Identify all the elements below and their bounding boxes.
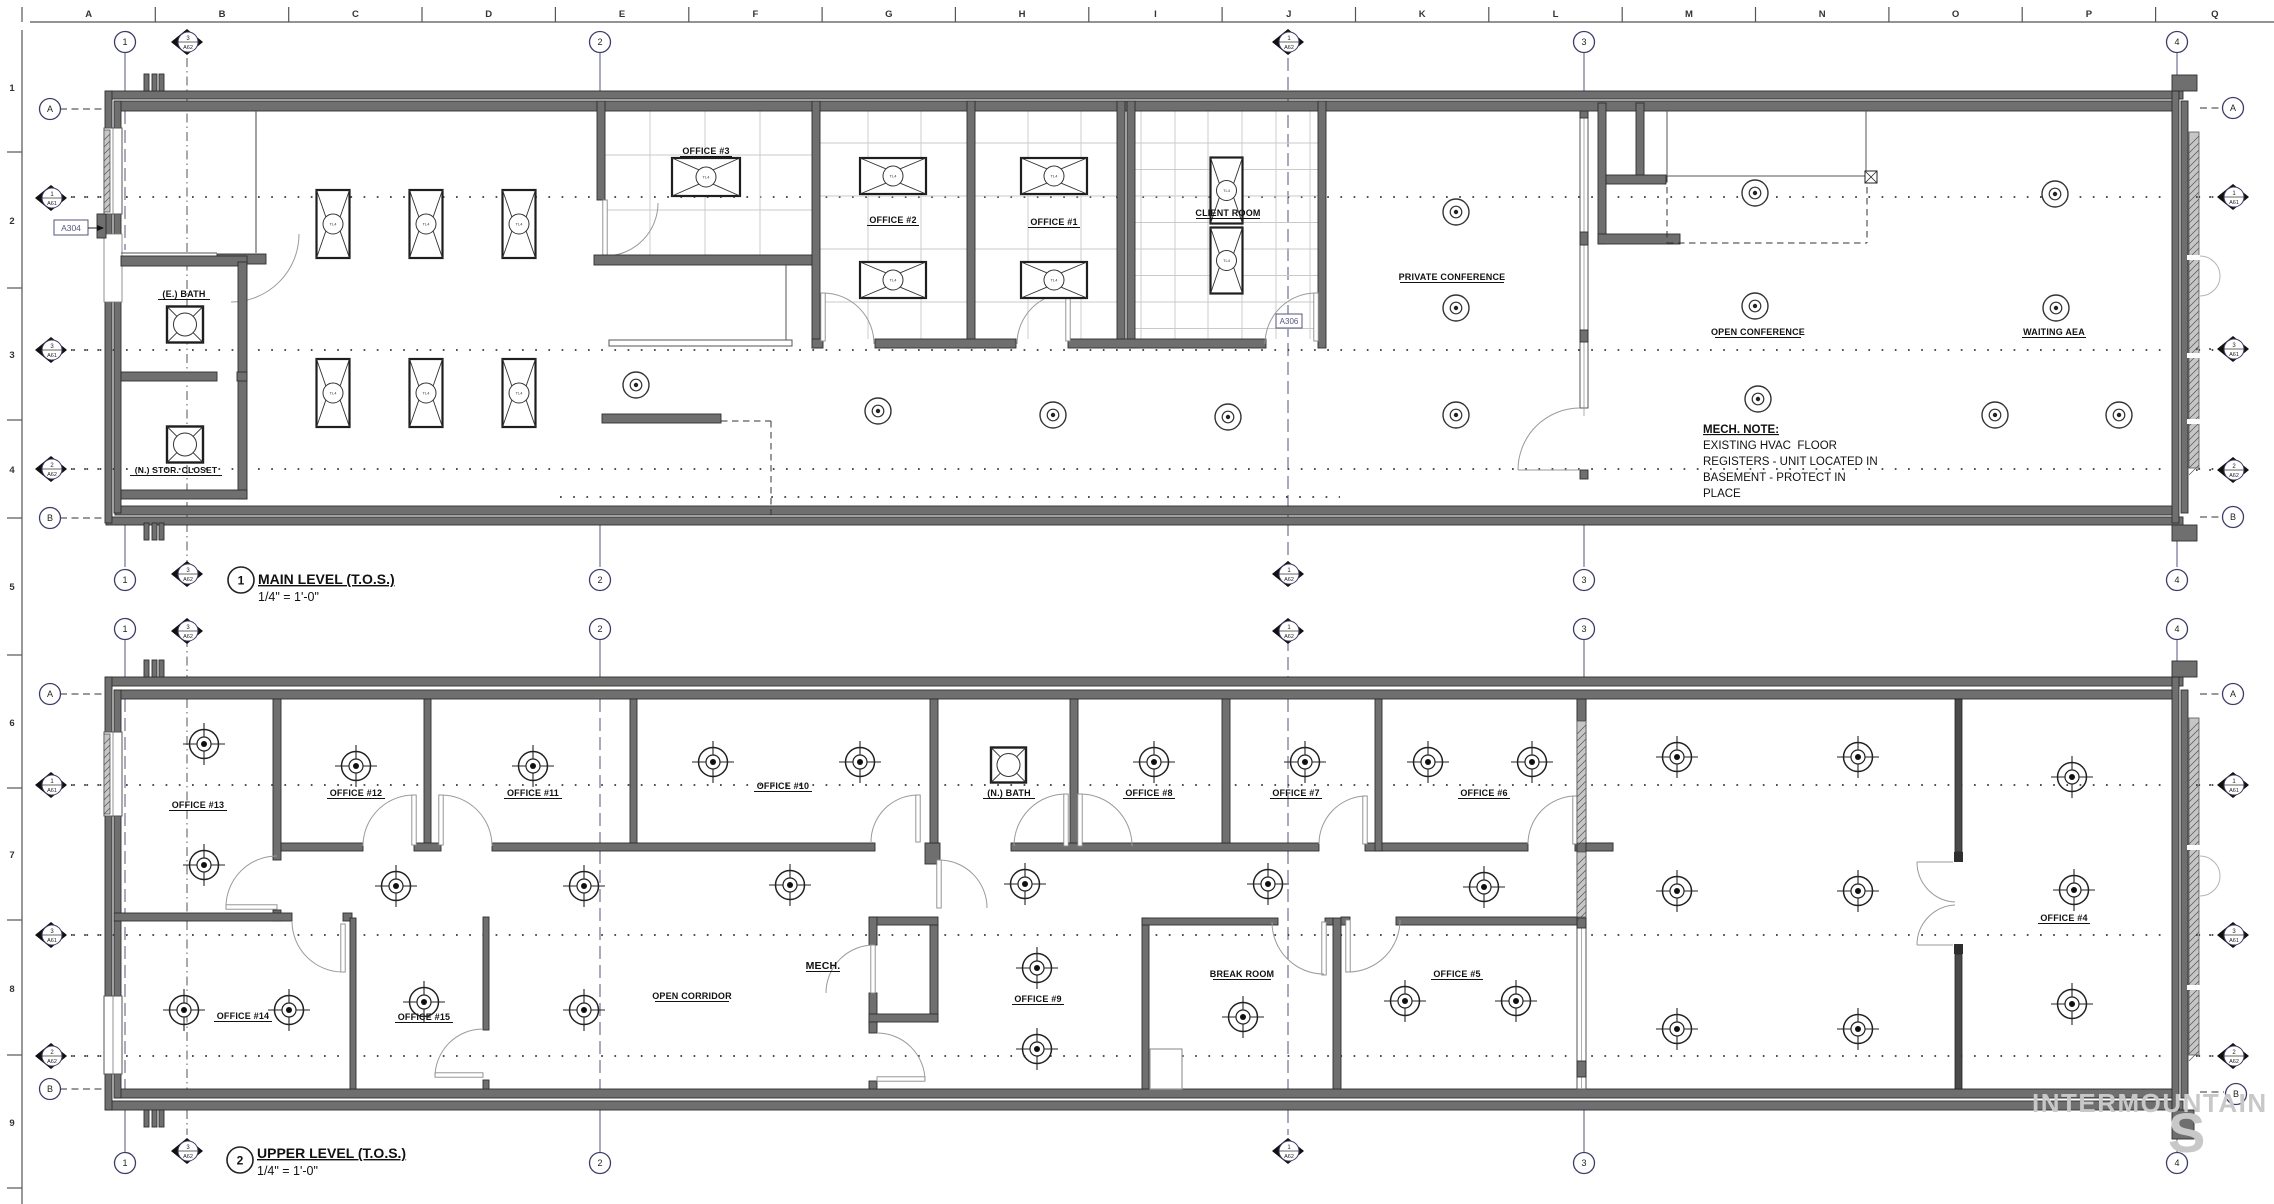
svg-text:K: K bbox=[1419, 9, 1426, 20]
svg-text:BASEMENT - PROTECT IN: BASEMENT - PROTECT IN bbox=[1703, 472, 1846, 484]
svg-text:OFFICE #2: OFFICE #2 bbox=[869, 215, 916, 225]
svg-text:1: 1 bbox=[122, 575, 127, 585]
svg-text:OFFICE #4: OFFICE #4 bbox=[2040, 913, 2087, 923]
svg-text:4: 4 bbox=[2174, 624, 2179, 634]
svg-text:A62: A62 bbox=[183, 634, 193, 640]
svg-text:E: E bbox=[619, 9, 625, 20]
svg-text:TL4: TL4 bbox=[423, 221, 431, 226]
svg-text:2: 2 bbox=[237, 1154, 244, 1168]
svg-text:G: G bbox=[885, 9, 892, 20]
svg-text:B: B bbox=[47, 513, 53, 523]
svg-text:A61: A61 bbox=[2229, 200, 2239, 206]
svg-text:A61: A61 bbox=[2229, 352, 2239, 358]
svg-text:N: N bbox=[1819, 9, 1826, 20]
svg-text:INTERMOUNTAIN: INTERMOUNTAIN bbox=[2032, 1088, 2268, 1118]
svg-text:TL4: TL4 bbox=[516, 390, 524, 395]
svg-text:PLACE: PLACE bbox=[1703, 488, 1741, 500]
svg-text:A61: A61 bbox=[47, 938, 57, 944]
svg-text:1: 1 bbox=[238, 574, 245, 588]
svg-text:REGISTERS - UNIT LOCATED IN: REGISTERS - UNIT LOCATED IN bbox=[1703, 456, 1878, 468]
svg-text:OFFICE #9: OFFICE #9 bbox=[1014, 994, 1061, 1004]
svg-text:A62: A62 bbox=[1284, 45, 1294, 51]
svg-text:A61: A61 bbox=[47, 353, 57, 359]
svg-text:1/4" = 1'-0": 1/4" = 1'-0" bbox=[258, 590, 319, 604]
svg-text:B: B bbox=[219, 9, 226, 20]
svg-text:OFFICE #6: OFFICE #6 bbox=[1460, 788, 1507, 798]
svg-text:A304: A304 bbox=[61, 223, 81, 233]
svg-text:2: 2 bbox=[597, 37, 602, 47]
svg-text:(E.) BATH: (E.) BATH bbox=[162, 289, 205, 299]
svg-text:S: S bbox=[2168, 1101, 2205, 1164]
svg-text:A62: A62 bbox=[183, 577, 193, 583]
svg-text:A306: A306 bbox=[1280, 317, 1299, 326]
svg-text:OFFICE #8: OFFICE #8 bbox=[1125, 788, 1172, 798]
svg-text:OFFICE #1: OFFICE #1 bbox=[1030, 217, 1077, 227]
svg-text:F: F bbox=[752, 9, 758, 20]
svg-text:3: 3 bbox=[1581, 1158, 1586, 1168]
svg-text:A62: A62 bbox=[2229, 473, 2239, 479]
svg-text:A: A bbox=[47, 104, 53, 114]
svg-text:OFFICE #11: OFFICE #11 bbox=[507, 788, 559, 798]
svg-text:EXISTING HVAC FLOOR: EXISTING HVAC FLOOR bbox=[1703, 440, 1837, 452]
svg-text:TL4: TL4 bbox=[703, 174, 711, 179]
svg-text:TL4: TL4 bbox=[890, 173, 898, 178]
svg-text:2: 2 bbox=[9, 216, 14, 227]
svg-text:A62: A62 bbox=[47, 472, 57, 478]
svg-text:CLIENT ROOM: CLIENT ROOM bbox=[1195, 208, 1260, 218]
svg-text:MAIN LEVEL (T.O.S.): MAIN LEVEL (T.O.S.) bbox=[258, 571, 395, 587]
svg-text:H: H bbox=[1019, 9, 1026, 20]
svg-text:M: M bbox=[1685, 9, 1693, 20]
svg-text:TL4: TL4 bbox=[1051, 277, 1059, 282]
svg-text:2: 2 bbox=[597, 1158, 602, 1168]
svg-text:(N.) BATH: (N.) BATH bbox=[987, 788, 1031, 798]
svg-text:A61: A61 bbox=[2229, 938, 2239, 944]
svg-text:A62: A62 bbox=[183, 45, 193, 51]
svg-text:4: 4 bbox=[2174, 575, 2179, 585]
svg-text:A62: A62 bbox=[47, 1059, 57, 1065]
svg-text:O: O bbox=[1952, 9, 1959, 20]
svg-text:3: 3 bbox=[1581, 575, 1586, 585]
svg-text:OFFICE #5: OFFICE #5 bbox=[1433, 969, 1480, 979]
svg-text:A62: A62 bbox=[2229, 1059, 2239, 1065]
svg-text:7: 7 bbox=[9, 850, 14, 861]
svg-text:A62: A62 bbox=[183, 1154, 193, 1160]
svg-text:B: B bbox=[2230, 512, 2236, 522]
svg-text:I: I bbox=[1154, 9, 1157, 20]
svg-text:1: 1 bbox=[122, 624, 127, 634]
svg-text:TL4: TL4 bbox=[1051, 173, 1059, 178]
svg-text:TL4: TL4 bbox=[330, 221, 338, 226]
svg-text:WAITING AEA: WAITING AEA bbox=[2023, 327, 2085, 337]
svg-text:OFFICE #3: OFFICE #3 bbox=[682, 146, 729, 156]
svg-text:1: 1 bbox=[122, 1158, 127, 1168]
svg-text:2: 2 bbox=[597, 575, 602, 585]
svg-text:6: 6 bbox=[9, 718, 14, 729]
svg-text:A62: A62 bbox=[1284, 1154, 1294, 1160]
svg-text:OFFICE #13: OFFICE #13 bbox=[172, 800, 225, 810]
svg-text:4: 4 bbox=[9, 465, 15, 476]
svg-text:OFFICE #12: OFFICE #12 bbox=[330, 788, 383, 798]
svg-text:4: 4 bbox=[2174, 37, 2179, 47]
svg-text:OFFICE #10: OFFICE #10 bbox=[757, 781, 810, 791]
svg-text:A61: A61 bbox=[47, 788, 57, 794]
svg-text:TL4: TL4 bbox=[423, 390, 431, 395]
svg-text:(N.) STOR. CLOSET: (N.) STOR. CLOSET bbox=[135, 465, 218, 475]
svg-text:OFFICE #7: OFFICE #7 bbox=[1272, 788, 1319, 798]
svg-text:B: B bbox=[47, 1084, 53, 1094]
svg-text:D: D bbox=[485, 9, 492, 20]
svg-text:A61: A61 bbox=[47, 201, 57, 207]
svg-text:A: A bbox=[2230, 689, 2236, 699]
svg-text:PRIVATE CONFERENCE: PRIVATE CONFERENCE bbox=[1399, 272, 1506, 282]
svg-text:OFFICE #14: OFFICE #14 bbox=[217, 1011, 270, 1021]
svg-text:OPEN CONFERENCE: OPEN CONFERENCE bbox=[1711, 327, 1805, 337]
svg-text:9: 9 bbox=[9, 1118, 14, 1129]
svg-text:1: 1 bbox=[122, 37, 127, 47]
svg-text:A62: A62 bbox=[1284, 634, 1294, 640]
svg-text:Q: Q bbox=[2211, 9, 2218, 20]
svg-text:1: 1 bbox=[9, 83, 15, 94]
svg-text:UPPER LEVEL (T.O.S.): UPPER LEVEL (T.O.S.) bbox=[257, 1145, 406, 1161]
svg-text:MECH. NOTE:: MECH. NOTE: bbox=[1703, 424, 1779, 436]
svg-text:5: 5 bbox=[9, 582, 15, 593]
svg-text:3: 3 bbox=[1581, 624, 1586, 634]
svg-text:A61: A61 bbox=[2229, 788, 2239, 794]
svg-text:TL4: TL4 bbox=[890, 277, 898, 282]
svg-text:8: 8 bbox=[9, 984, 14, 995]
svg-text:A: A bbox=[47, 689, 53, 699]
svg-text:A: A bbox=[85, 9, 92, 20]
svg-text:BREAK ROOM: BREAK ROOM bbox=[1210, 969, 1275, 979]
svg-text:TL4: TL4 bbox=[1223, 188, 1231, 193]
svg-text:C: C bbox=[352, 9, 359, 20]
svg-text:TL4: TL4 bbox=[516, 221, 524, 226]
svg-text:A62: A62 bbox=[1284, 577, 1294, 583]
svg-text:3: 3 bbox=[1581, 37, 1586, 47]
svg-text:A: A bbox=[2230, 103, 2236, 113]
svg-text:J: J bbox=[1286, 9, 1291, 20]
svg-text:3: 3 bbox=[9, 350, 14, 361]
svg-text:TL4: TL4 bbox=[330, 390, 338, 395]
svg-text:OPEN CORRIDOR: OPEN CORRIDOR bbox=[652, 991, 732, 1001]
svg-text:L: L bbox=[1553, 9, 1559, 20]
svg-text:1/4" = 1'-0": 1/4" = 1'-0" bbox=[257, 1164, 318, 1178]
svg-text:TL4: TL4 bbox=[1223, 258, 1231, 263]
svg-text:P: P bbox=[2086, 9, 2093, 20]
svg-text:2: 2 bbox=[597, 624, 602, 634]
svg-text:MECH.: MECH. bbox=[806, 960, 841, 972]
